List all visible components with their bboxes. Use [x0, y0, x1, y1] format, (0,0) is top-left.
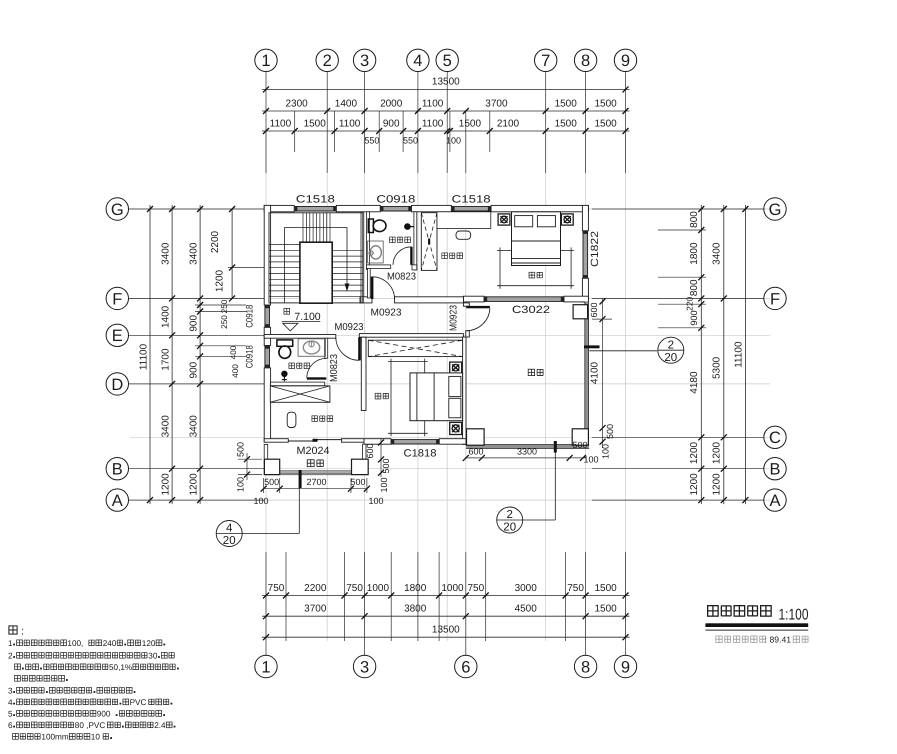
- svg-text:A: A: [112, 492, 123, 510]
- svg-text:2200: 2200: [304, 583, 327, 594]
- svg-text:550: 550: [364, 136, 379, 146]
- svg-text:100: 100: [253, 496, 268, 506]
- svg-text:2300: 2300: [285, 98, 308, 109]
- svg-text:F: F: [112, 290, 122, 308]
- svg-text:3700: 3700: [485, 98, 508, 109]
- svg-text:C1518: C1518: [452, 194, 491, 206]
- svg-text:1200: 1200: [215, 269, 226, 292]
- svg-text:100,: 100,: [67, 639, 83, 648]
- svg-text:500: 500: [605, 424, 615, 439]
- svg-text:750: 750: [346, 583, 363, 594]
- svg-text:C1818: C1818: [404, 448, 437, 460]
- svg-text:M0823: M0823: [329, 354, 340, 382]
- svg-text:4: 4: [226, 523, 233, 535]
- svg-text:500: 500: [350, 477, 365, 487]
- svg-text::: :: [765, 634, 767, 644]
- svg-text:1800: 1800: [689, 242, 700, 265]
- svg-text:M0923: M0923: [449, 305, 460, 331]
- svg-text:1400: 1400: [160, 305, 171, 328]
- svg-text:13500: 13500: [432, 624, 460, 635]
- svg-text:3400: 3400: [188, 242, 199, 265]
- svg-text:2: 2: [8, 651, 13, 660]
- svg-text:9: 9: [621, 52, 630, 70]
- svg-text:30: 30: [148, 651, 158, 660]
- svg-text:1000: 1000: [367, 583, 390, 594]
- svg-text:100: 100: [583, 455, 598, 465]
- svg-text:1: 1: [261, 52, 270, 70]
- svg-text:4500: 4500: [515, 604, 538, 615]
- svg-text:100: 100: [236, 477, 246, 492]
- svg-text::: :: [21, 626, 24, 638]
- svg-text:B: B: [112, 461, 123, 479]
- svg-text:1200: 1200: [160, 473, 171, 496]
- svg-text:2.4: 2.4: [154, 721, 166, 730]
- svg-text:100mm,: 100mm,: [41, 732, 71, 741]
- svg-text:C: C: [769, 429, 781, 447]
- svg-text:100: 100: [379, 477, 389, 492]
- svg-text:M0823: M0823: [387, 271, 416, 282]
- svg-text:C1518: C1518: [296, 194, 335, 206]
- svg-text:3400: 3400: [160, 242, 171, 265]
- svg-text:1500: 1500: [555, 98, 578, 109]
- svg-text:C0918: C0918: [244, 305, 255, 328]
- svg-text:9: 9: [621, 658, 630, 676]
- svg-text:2200: 2200: [210, 230, 221, 253]
- svg-text:500: 500: [381, 458, 391, 473]
- svg-text:M0923: M0923: [335, 322, 364, 333]
- svg-text:PVC: PVC: [130, 698, 147, 707]
- svg-text:50,1%: 50,1%: [109, 663, 132, 672]
- svg-text:4: 4: [413, 52, 422, 70]
- svg-text:750: 750: [567, 583, 584, 594]
- svg-text:1: 1: [261, 658, 270, 676]
- svg-text:1500: 1500: [594, 583, 617, 594]
- svg-text:B: B: [769, 461, 780, 479]
- svg-text:M0923: M0923: [371, 308, 402, 319]
- svg-text:1200: 1200: [689, 441, 700, 464]
- svg-text:20: 20: [503, 522, 516, 534]
- svg-text:2700: 2700: [306, 477, 326, 487]
- svg-text:6: 6: [8, 721, 13, 730]
- svg-text:11100: 11100: [733, 341, 744, 368]
- svg-text:4: 4: [8, 698, 13, 707]
- svg-text:G: G: [111, 201, 124, 219]
- svg-text:600: 600: [365, 443, 375, 458]
- svg-text:900: 900: [689, 310, 699, 325]
- svg-text:3400: 3400: [188, 415, 199, 438]
- svg-text:3400: 3400: [712, 242, 723, 265]
- svg-text:240: 240: [103, 639, 117, 648]
- svg-text:20: 20: [664, 352, 677, 364]
- svg-text:1100: 1100: [270, 118, 292, 129]
- svg-text:C0918: C0918: [376, 194, 415, 206]
- svg-text:100: 100: [368, 496, 383, 506]
- svg-text:5: 5: [443, 52, 452, 70]
- svg-text:3300: 3300: [517, 447, 537, 457]
- svg-text:900: 900: [383, 118, 400, 129]
- svg-text:80 ,PVC: 80 ,PVC: [75, 721, 106, 730]
- svg-text:M2024: M2024: [297, 445, 330, 457]
- svg-text:3400: 3400: [160, 415, 171, 438]
- svg-text:1500: 1500: [555, 118, 578, 129]
- svg-text:1200: 1200: [689, 473, 700, 496]
- svg-text:2: 2: [323, 52, 332, 70]
- svg-text:100: 100: [601, 444, 611, 459]
- svg-text:C1822: C1822: [589, 231, 601, 267]
- svg-text:G: G: [769, 201, 782, 219]
- svg-text:2: 2: [506, 509, 512, 521]
- svg-text:89.41: 89.41: [770, 634, 792, 644]
- svg-text:600: 600: [468, 447, 483, 457]
- svg-text:500: 500: [264, 477, 279, 487]
- svg-text:100: 100: [446, 136, 461, 146]
- svg-text:400: 400: [229, 345, 238, 359]
- svg-text:1500: 1500: [594, 98, 617, 109]
- svg-text:4180: 4180: [689, 371, 700, 394]
- svg-text:1:100: 1:100: [779, 607, 809, 624]
- svg-text:1500: 1500: [459, 118, 482, 129]
- svg-text:20: 20: [223, 535, 236, 547]
- svg-text:C3022: C3022: [512, 304, 550, 316]
- svg-text:8: 8: [581, 52, 590, 70]
- svg-text:1500: 1500: [304, 118, 327, 129]
- svg-text:11100: 11100: [138, 343, 149, 370]
- svg-text:A: A: [769, 492, 780, 510]
- svg-text:250: 250: [220, 315, 229, 329]
- svg-text:1400: 1400: [335, 98, 358, 109]
- svg-text:1100: 1100: [339, 118, 361, 129]
- svg-text:F: F: [770, 290, 780, 308]
- svg-text:1800: 1800: [404, 583, 427, 594]
- svg-text:800: 800: [689, 211, 700, 228]
- svg-text:5300: 5300: [712, 356, 723, 379]
- svg-text:2100: 2100: [497, 118, 520, 129]
- svg-text:550: 550: [403, 136, 418, 146]
- svg-text:1100: 1100: [422, 118, 444, 129]
- svg-text:1: 1: [8, 639, 13, 648]
- svg-text:1000: 1000: [441, 583, 464, 594]
- svg-text:120: 120: [142, 639, 156, 648]
- svg-text:E: E: [112, 327, 123, 345]
- svg-text:1500: 1500: [594, 604, 617, 615]
- svg-text:6: 6: [461, 658, 470, 676]
- svg-text:500: 500: [236, 442, 246, 457]
- svg-text:1200: 1200: [712, 441, 723, 464]
- svg-text:D: D: [111, 376, 123, 394]
- svg-text:3000: 3000: [515, 583, 538, 594]
- svg-text:750: 750: [268, 583, 285, 594]
- svg-text:1200: 1200: [188, 473, 199, 496]
- svg-text:900: 900: [97, 709, 111, 718]
- svg-text:3800: 3800: [404, 604, 427, 615]
- svg-text:7: 7: [541, 52, 550, 70]
- svg-text:750: 750: [467, 583, 484, 594]
- svg-text:3: 3: [8, 686, 13, 695]
- svg-text:2000: 2000: [380, 98, 403, 109]
- svg-text:400: 400: [231, 364, 240, 378]
- svg-text:3: 3: [360, 52, 369, 70]
- svg-text:1100: 1100: [422, 98, 444, 109]
- svg-text:800: 800: [689, 279, 700, 296]
- svg-text:600: 600: [589, 302, 599, 317]
- svg-text:900: 900: [188, 315, 199, 332]
- svg-text:220: 220: [684, 296, 694, 310]
- svg-text:2: 2: [668, 339, 674, 351]
- svg-text:1200: 1200: [712, 473, 723, 496]
- svg-text:1700: 1700: [160, 348, 171, 371]
- svg-text:5: 5: [8, 709, 13, 718]
- svg-text:10: 10: [91, 732, 101, 741]
- svg-text:3700: 3700: [304, 604, 327, 615]
- svg-text:900: 900: [188, 361, 199, 378]
- svg-text:250: 250: [220, 299, 229, 313]
- svg-text:C0918: C0918: [244, 345, 255, 368]
- svg-text:4100: 4100: [590, 361, 601, 384]
- svg-text:1500: 1500: [594, 118, 617, 129]
- svg-text:500: 500: [572, 440, 587, 450]
- svg-text:13500: 13500: [432, 77, 460, 88]
- svg-text:3: 3: [360, 658, 369, 676]
- svg-text:8: 8: [581, 658, 590, 676]
